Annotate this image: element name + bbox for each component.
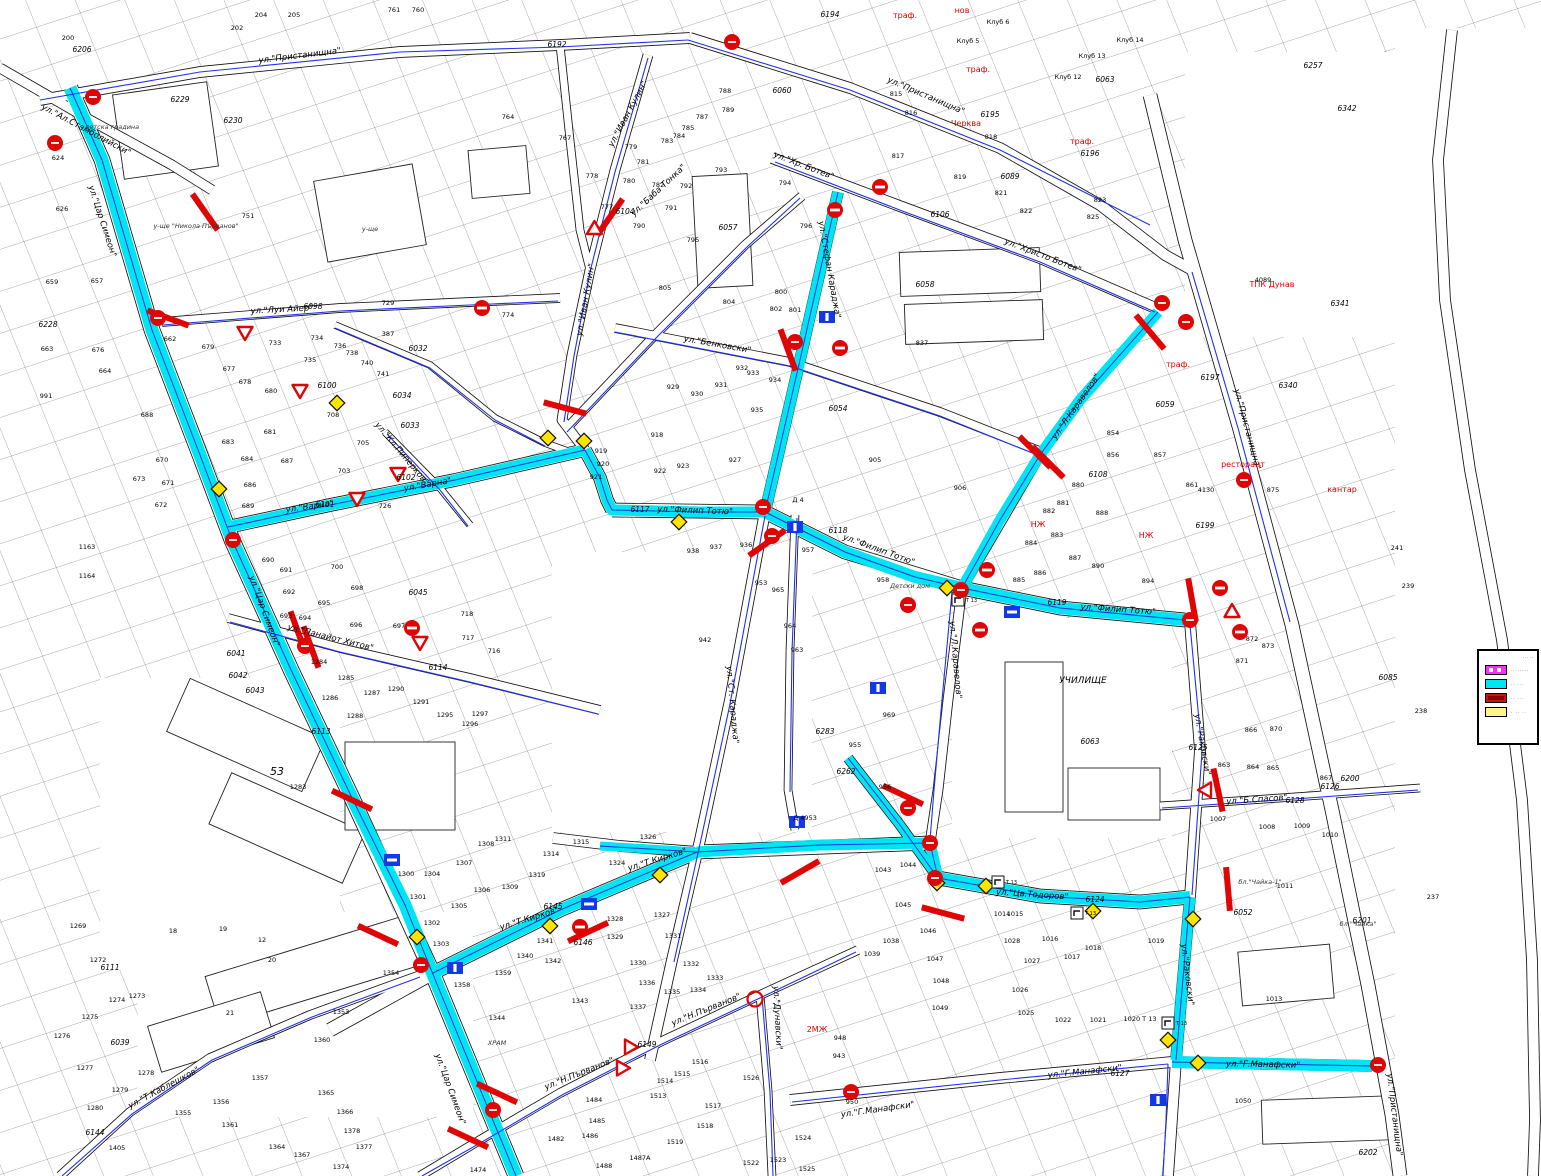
parcel-number: 888	[1096, 509, 1108, 517]
parcel-number: 1319	[529, 871, 546, 879]
parcel-number: 1324	[609, 859, 626, 867]
no-entry-bar-icon	[835, 347, 845, 350]
parcel-number: 1047	[927, 955, 944, 963]
parcel-number: 1326	[640, 833, 657, 841]
parcel-number: 1341	[537, 937, 554, 945]
parcel-number: 1279	[112, 1086, 129, 1094]
parcel-number: 837	[916, 339, 928, 347]
parcel-number: 788	[719, 87, 731, 95]
parcel-number: 1274	[109, 996, 126, 1004]
parcel-number: 777	[601, 203, 613, 211]
poi-red-label: нов	[955, 6, 970, 15]
parcel-number: 1269	[70, 922, 87, 930]
poi-red-label: траф.	[1070, 137, 1094, 146]
parcel-number: 1273	[129, 992, 146, 1000]
parcel-number: 1009	[1294, 822, 1311, 830]
street-code: 6341	[1330, 299, 1349, 308]
street-code: 6057	[718, 223, 737, 232]
parcel-number: 890	[1092, 562, 1104, 570]
parcel-number: 1285	[338, 674, 355, 682]
street-code: 6229	[170, 95, 189, 104]
parcel-number: 1283	[290, 783, 307, 791]
parcel-number: 387	[382, 330, 394, 338]
open-area	[1395, 28, 1541, 1176]
parcel-number: 885	[1013, 576, 1025, 584]
parcel-number: 684	[241, 455, 253, 463]
parcel-number: 865	[1267, 764, 1279, 772]
one-way-arrow-icon	[825, 313, 828, 321]
parcel-number: 1163	[79, 543, 96, 551]
parcel-number: 693	[280, 612, 292, 620]
parcel-number: 672	[155, 501, 167, 509]
one-way-arrow-icon	[793, 523, 796, 531]
parcel-number: 906	[954, 484, 966, 492]
street-code: 6089	[1000, 172, 1019, 181]
parcel-number: 716	[488, 647, 500, 655]
poi-red-label: кантар	[1327, 485, 1357, 494]
parcel-number: 1008	[1259, 823, 1276, 831]
parcel-number: 1330	[630, 959, 647, 967]
parcel-number: 1517	[705, 1102, 722, 1110]
parcel-number: 760	[412, 6, 424, 14]
parcel-number: 1050	[1235, 1097, 1252, 1105]
parcel-number: 1013	[1266, 995, 1283, 1003]
junction-node-text	[1374, 1064, 1382, 1066]
parcel-number: 694	[299, 614, 311, 622]
parcel-number: 953	[755, 579, 767, 587]
parcel-number: 664	[99, 367, 111, 375]
parcel-number: Клуб 13	[1079, 52, 1106, 60]
poi-red-label: 2МЖ	[807, 1025, 828, 1034]
city-map-canvas[interactable]: Т 13Т 13Т 13Т 13200202204205760761751624…	[0, 0, 1541, 1176]
parcel-number: 1288	[347, 712, 364, 720]
parcel-number: 778	[586, 172, 598, 180]
parcel-number: 819	[954, 173, 966, 181]
parcel-number: 1344	[489, 1014, 506, 1022]
t-junction-sign-icon	[1071, 907, 1083, 919]
legend-item: · ·· ··	[1485, 707, 1534, 717]
parcel-number: 735	[304, 356, 316, 364]
parcel-number: 1328	[607, 915, 624, 923]
legend-item: ·· ···	[1485, 679, 1534, 689]
parcel-number: 1343	[572, 997, 589, 1005]
parcel-number: 882	[1043, 507, 1055, 515]
parcel-number: 687	[281, 457, 293, 465]
street-code: 6283	[815, 727, 834, 736]
street-code: 6119	[1047, 598, 1066, 607]
street-code: 6108	[1088, 470, 1107, 479]
t-sign-label: Т 13	[1005, 880, 1017, 886]
parcel-number: 12	[258, 936, 266, 944]
parcel-number: 789	[722, 106, 734, 114]
parcel-number: 18	[169, 927, 177, 935]
parcel-number: 1342	[545, 957, 562, 965]
parcel-number: 21	[226, 1009, 234, 1017]
no-entry-bar-icon	[575, 926, 585, 929]
parcel-number: 689	[242, 502, 254, 510]
parcel-number: 1039	[864, 950, 881, 958]
legend-item-label: ········	[1511, 668, 1529, 673]
info-sign-bar-icon	[387, 859, 397, 862]
parcel-number: 942	[699, 636, 711, 644]
parcel-number: 673	[133, 475, 145, 483]
junction-node-text	[1182, 321, 1190, 323]
parcel-number: 1007	[1210, 815, 1227, 823]
one-way-arrow-icon	[876, 684, 879, 692]
parcel-number: 1513	[650, 1092, 667, 1100]
parcel-number: Клуб 5	[957, 37, 980, 45]
street-code: 6052	[1233, 908, 1252, 917]
parcel-number: 1518	[697, 1122, 714, 1130]
poi-red-label: траф.	[1166, 360, 1190, 369]
parcel-number: 679	[202, 343, 214, 351]
street-code: 6033	[400, 421, 419, 430]
no-entry-bar-icon	[975, 629, 985, 632]
street-code: 6195	[980, 110, 999, 119]
parcel-number: 1365	[318, 1089, 335, 1097]
parcel-number: 1276	[54, 1032, 71, 1040]
parcel-number: 784	[673, 132, 685, 140]
parcel-number: 1331	[665, 932, 682, 940]
one-way-arrow-icon	[1156, 1096, 1159, 1104]
parcel-number: 1487А	[630, 1154, 652, 1162]
parcel-number: 861	[1186, 481, 1198, 489]
no-entry-bar-icon	[1235, 631, 1245, 634]
parcel-number: 1296	[462, 720, 479, 728]
parcel-number: 695	[318, 599, 330, 607]
junction-node-text	[229, 539, 237, 541]
street-code: 6202	[1358, 1148, 1377, 1157]
parcel-number: 1486	[582, 1132, 599, 1140]
parcel-number: 1361	[222, 1121, 239, 1129]
parcel-number: 761	[388, 6, 400, 14]
street-code: 6106	[930, 210, 949, 219]
street-code: 6063	[1080, 737, 1099, 746]
parcel-number: 867	[1320, 774, 1332, 782]
legend-swatch-red-icon	[1485, 693, 1507, 703]
parcel-number: 802	[770, 305, 782, 313]
open-area	[552, 552, 812, 832]
parcel-number: 1048	[933, 977, 950, 985]
legend-swatch-magenta-icon	[1485, 665, 1507, 675]
parcel-number: 1016	[1042, 935, 1059, 943]
parcel-number: 1525	[799, 1165, 816, 1173]
parcel-number: 923	[677, 462, 689, 470]
parcel-number: 1280	[87, 1104, 104, 1112]
junction-node-text	[51, 142, 59, 144]
legend-item-label: ·· ···	[1511, 682, 1525, 687]
street-code: 6042	[228, 671, 247, 680]
parcel-number: 1049	[932, 1004, 949, 1012]
parcel-number: 1287	[364, 689, 381, 697]
parcel-number: 883	[1051, 531, 1063, 539]
parcel-number: 1524	[795, 1134, 812, 1142]
info-sign-bar-icon	[584, 903, 594, 906]
parcel-number: 886	[1034, 569, 1046, 577]
parcel-number: 726	[379, 502, 391, 510]
parcel-number: 795	[687, 236, 699, 244]
parcel-number: 815	[890, 90, 902, 98]
parcel-number: 943	[833, 1052, 845, 1060]
parcel-number: 905	[869, 456, 881, 464]
poi-red-label: траф.	[966, 65, 990, 74]
building-outline	[468, 146, 530, 199]
parcel-number: 884	[1025, 539, 1037, 547]
parcel-number: Клуб 6	[987, 18, 1010, 26]
parcel-number: 1354	[383, 969, 400, 977]
street-code: 6144	[85, 1128, 104, 1137]
parcel-number: 921	[590, 473, 602, 481]
parcel-number: 805	[659, 284, 671, 292]
junction-node-text	[301, 645, 309, 647]
street-code: 6192	[547, 40, 566, 49]
parcel-number: 871	[1236, 657, 1248, 665]
parcel-number: 767	[559, 134, 571, 142]
parcel-number: 1278	[138, 1069, 155, 1077]
parcel-number: 700	[331, 563, 343, 571]
parcel-number: 1309	[502, 883, 519, 891]
street-code: 6340	[1278, 381, 1297, 390]
street-code: 6146	[573, 938, 592, 947]
parcel-number: 1019	[1148, 937, 1165, 945]
parcel-number: 1360	[314, 1036, 331, 1044]
parcel-number: 670	[156, 456, 168, 464]
parcel-number: 1302	[424, 919, 441, 927]
street-code: 6197	[1200, 373, 1219, 382]
junction-node-text	[417, 964, 425, 966]
parcel-number: 200	[62, 34, 74, 42]
poi-red-label: ресторант	[1221, 460, 1265, 469]
parcel-number: 686	[244, 481, 256, 489]
street-code: 6054	[828, 404, 847, 413]
street-code: 6111	[100, 963, 119, 972]
parcel-number: 1332	[683, 960, 700, 968]
parcel-number: 873	[1262, 642, 1274, 650]
parcel-number: 1044	[900, 861, 917, 869]
parcel-number: 956	[879, 783, 891, 791]
t-sign-label: Т 13	[965, 598, 977, 604]
parcel-number: 1295	[437, 711, 454, 719]
junction-node-text	[1158, 302, 1166, 304]
street-code: 6034	[392, 391, 411, 400]
parcel-number: 792	[680, 182, 692, 190]
poi-red-label: ТПК Дунав	[1249, 280, 1295, 289]
parcel-number: 794	[779, 179, 791, 187]
parcel-number: 1043	[875, 866, 892, 874]
parcel-number: 816	[905, 109, 917, 117]
street-code: 6342	[1337, 104, 1356, 113]
building-outline	[314, 164, 427, 262]
parcel-number: 1297	[472, 710, 489, 718]
parcel-number: 929	[667, 383, 679, 391]
building-outline	[1005, 662, 1063, 812]
parcel-number: 1311	[495, 835, 512, 843]
parcel-number: 740	[361, 359, 373, 367]
poi-label: Детски дом	[889, 582, 930, 590]
parcel-number: 875	[1267, 486, 1279, 494]
parcel-number: 1026	[1012, 986, 1029, 994]
poi-label: детска градина	[84, 123, 139, 131]
parcel-number: 935	[751, 406, 763, 414]
parcel-number: 969	[883, 711, 895, 719]
parcel-number: 729	[382, 299, 394, 307]
parcel-number: 1359	[495, 969, 512, 977]
parcel-number: 937	[710, 543, 722, 551]
parcel-number: 1286	[322, 694, 339, 702]
parcel-number: 918	[651, 431, 663, 439]
street-code: 6058	[915, 280, 934, 289]
street-code: 6194	[820, 10, 839, 19]
street-code: 6126	[1320, 782, 1339, 791]
parcel-number: 1482	[548, 1135, 565, 1143]
parcel-number: 1025	[1018, 1009, 1035, 1017]
building-outline	[1238, 944, 1334, 1006]
poi-label: у-ще "Никола Първанов"	[152, 222, 238, 230]
parcel-number: 1474	[470, 1166, 487, 1174]
junction-node-text	[904, 807, 912, 809]
parcel-number: Д 4953	[793, 814, 817, 822]
map-viewport[interactable]: Т 13Т 13Т 13Т 13200202204205760761751624…	[0, 0, 1541, 1176]
junction-node-text	[847, 1091, 855, 1093]
parcel-number: 692	[283, 588, 295, 596]
poi-red-label: траф.	[893, 11, 917, 20]
area-label: УЧИЛИЩЕ	[1059, 676, 1107, 686]
street-code: 6100	[317, 381, 336, 390]
t-junction-sign-icon	[992, 876, 1004, 888]
parcel-number: 790	[633, 222, 645, 230]
parcel-number: 1364	[269, 1143, 286, 1151]
parcel-number: 1378	[344, 1127, 361, 1135]
parcel-number: 1020 Т 13	[1124, 1015, 1157, 1023]
parcel-number: 796	[800, 222, 812, 230]
street-code: 6124	[1085, 895, 1104, 904]
parcel-number: 683	[222, 438, 234, 446]
parcel-number: 1284	[311, 658, 328, 666]
poi-red-label: НЖ	[1031, 520, 1046, 529]
legend-item-label: · ·· ··	[1511, 710, 1527, 715]
parcel-number: 864	[1247, 763, 1259, 771]
junction-node-text	[759, 506, 767, 508]
parcel-number: 1366	[337, 1108, 354, 1116]
parcel-number: 955	[849, 741, 861, 749]
no-entry-bar-icon	[875, 186, 885, 189]
parcel-number: 681	[264, 428, 276, 436]
legend-swatch-cyan-icon	[1485, 679, 1507, 689]
junction-node-text	[791, 341, 799, 343]
parcel-number: 894	[1142, 577, 1154, 585]
parcel-number: 1519	[667, 1138, 684, 1146]
parcel-number: 1335	[664, 988, 681, 996]
parcel-number: 804	[723, 298, 735, 306]
street-code: 6063	[1095, 75, 1114, 84]
parcel-number: 717	[462, 634, 474, 642]
parcel-number: 1333	[707, 974, 724, 982]
parcel-number: 1291	[413, 698, 430, 706]
parcel-number: 817	[892, 152, 904, 160]
parcel-number: 800	[775, 288, 787, 296]
junction-node-text	[957, 589, 965, 591]
parcel-number: 1522	[743, 1159, 760, 1167]
parcel-number: 825	[1087, 213, 1099, 221]
parcel-number: 1045	[895, 901, 912, 909]
poi-label: бл."Чайка-1"	[1238, 878, 1281, 886]
parcel-number: 657	[91, 277, 103, 285]
poi-red-label: НЖ	[1139, 531, 1154, 540]
parcel-number: 920	[597, 460, 609, 468]
one-way-arrow-icon	[453, 964, 456, 972]
parcel-number: 662	[164, 335, 176, 343]
parcel-number: 238	[1415, 707, 1427, 715]
parcel-number: 1275	[82, 1013, 99, 1021]
t-sign-label: Т 13	[1175, 1021, 1187, 1027]
parcel-number: 1488	[596, 1162, 613, 1170]
building-outline	[1068, 768, 1160, 820]
parcel-number: 856	[1107, 451, 1119, 459]
parcel-number: 708	[327, 411, 339, 419]
parcel-number: 1355	[175, 1109, 192, 1117]
legend-item: ········	[1485, 665, 1534, 675]
parcel-number: 738	[346, 349, 358, 357]
parcel-number: 19	[219, 925, 227, 933]
parcel-number: 678	[239, 378, 251, 386]
parcel-number: 872	[1246, 635, 1258, 643]
parcel-number: 938	[687, 547, 699, 555]
parcel-number: 671	[162, 479, 174, 487]
parcel-number: 1337	[630, 1003, 647, 1011]
parcel-number: 1353	[333, 1008, 350, 1016]
parcel-number: 931	[715, 381, 727, 389]
parcel-number: 688	[141, 411, 153, 419]
parcel-number: 854	[1107, 429, 1119, 437]
parcel-number: 1526	[743, 1074, 760, 1082]
parcel-number: 1304	[424, 870, 441, 878]
parcel-number: 1021	[1090, 1016, 1107, 1024]
building-outline	[1261, 1096, 1390, 1144]
junction-node-text	[1240, 479, 1248, 481]
no-entry-bar-icon	[407, 627, 417, 630]
street-code: 6149	[637, 1040, 656, 1049]
parcel-number: 991	[40, 392, 52, 400]
parcel-number: 821	[995, 189, 1007, 197]
parcel-number: 751	[242, 212, 254, 220]
parcel-number: 690	[262, 556, 274, 564]
parcel-number: 880	[1072, 481, 1084, 489]
parcel-number: 663	[41, 345, 53, 353]
parcel-number: 1514	[657, 1077, 674, 1085]
parcel-number: 823	[1094, 196, 1106, 204]
parcel-number: 1357	[252, 1074, 269, 1082]
junction-node-text	[904, 604, 912, 606]
parcel-number: 1301	[410, 893, 427, 901]
junction-node-text	[154, 317, 162, 319]
parcel-number: 958	[877, 576, 889, 584]
legend-item-label: ·· ···	[1511, 696, 1525, 701]
parcel-number: 779	[625, 143, 637, 151]
parcel-number: 948	[834, 1034, 846, 1042]
street-code: 6043	[245, 686, 264, 695]
parcel-number: 870	[1270, 725, 1282, 733]
street-code: 6230	[223, 116, 242, 125]
parcel-number: 741	[377, 370, 389, 378]
legend-swatch-yellow-icon	[1485, 707, 1507, 717]
parcel-number: 1374	[333, 1163, 350, 1171]
parcel-number: 950	[846, 1098, 858, 1106]
parcel-number: 1315	[573, 838, 590, 846]
street-code: 6113	[311, 727, 330, 736]
parcel-number: 957	[802, 546, 814, 554]
parcel-number: 734	[311, 334, 323, 342]
parcel-number: 1356	[213, 1098, 230, 1106]
